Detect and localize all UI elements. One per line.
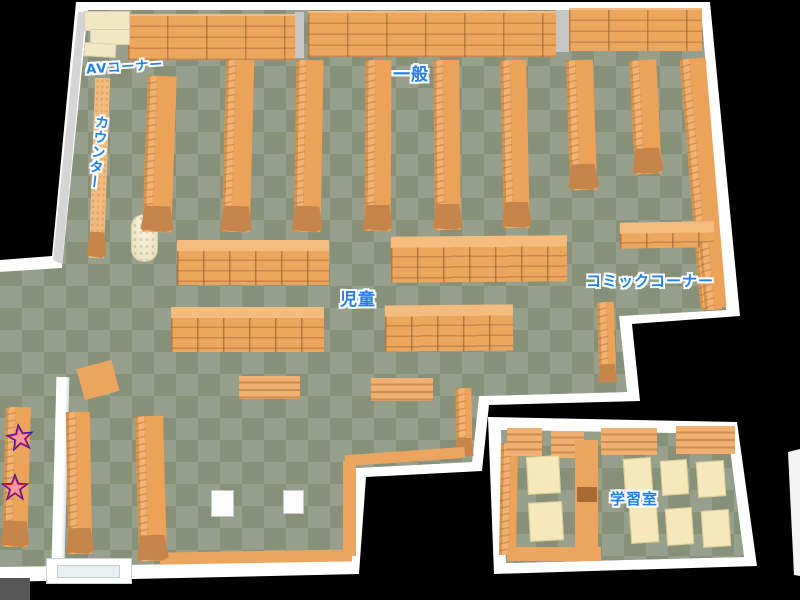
partition-gap	[577, 487, 597, 502]
bookshelf	[66, 412, 92, 554]
bookshelf	[507, 428, 542, 456]
bookshelf	[566, 60, 598, 191]
wall-shelf-trim	[507, 547, 601, 561]
star-icon	[3, 421, 37, 455]
study-desk	[660, 459, 689, 496]
study-desk	[629, 504, 660, 544]
small-table	[211, 490, 234, 517]
bookshelf	[222, 60, 254, 233]
area-label-study-room: 学習室	[610, 488, 658, 509]
study-table	[526, 455, 561, 495]
bookshelf	[597, 302, 617, 383]
bookshelf	[142, 76, 176, 233]
pillar	[295, 12, 304, 58]
study-desk	[696, 460, 726, 498]
bench	[371, 378, 433, 401]
bookshelf	[135, 416, 167, 562]
study-desk	[701, 509, 732, 548]
study-desk	[665, 507, 695, 546]
bookshelf-low	[177, 240, 329, 285]
small-table	[283, 490, 304, 514]
bookshelf-wall-top-center	[308, 11, 556, 57]
wall-shelf-trim	[343, 461, 356, 556]
door-pane	[57, 565, 120, 578]
bookshelf	[433, 60, 460, 230]
bookshelf-low	[171, 307, 324, 352]
av-shelf	[84, 42, 117, 58]
study-table	[528, 501, 564, 542]
bookshelf-low	[385, 304, 513, 351]
star-icon	[0, 473, 30, 503]
bookshelf-wall-top-right	[569, 8, 702, 51]
area-label-children: 児童	[340, 285, 376, 310]
av-shelf	[84, 11, 130, 31]
bookshelf	[500, 60, 530, 229]
pillar	[556, 10, 569, 52]
entrance-door	[46, 558, 132, 584]
wall-shadow-corner	[0, 578, 30, 600]
bookshelf	[365, 60, 392, 231]
bookshelf	[601, 428, 657, 455]
bookshelf	[676, 426, 735, 454]
area-label-general: 一般	[393, 60, 429, 85]
bench	[239, 376, 300, 399]
bookshelf-low	[391, 235, 567, 283]
area-label-comic-corner: コミックコーナー	[586, 270, 714, 291]
bookshelf	[294, 60, 324, 232]
library-floor-map: AVコーナー 一般 カウンター 児童 コミックコーナー 学習室	[0, 0, 800, 600]
bookshelf	[629, 59, 662, 174]
bookshelf	[499, 443, 518, 555]
